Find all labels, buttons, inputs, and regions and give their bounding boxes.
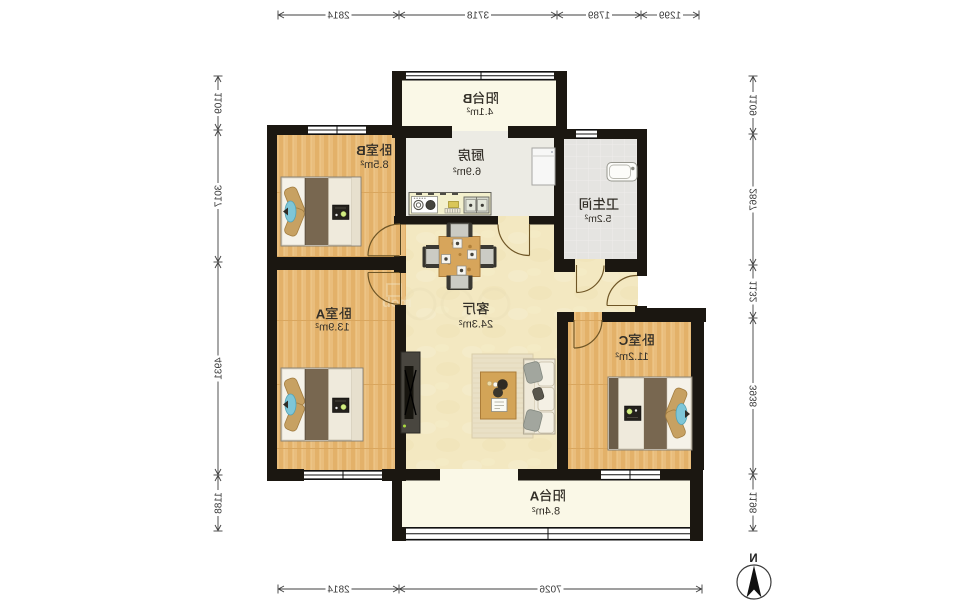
svg-text:11.2m²: 11.2m²: [615, 351, 649, 363]
svg-text:C: C: [618, 333, 628, 348]
svg-text:4931: 4931: [214, 357, 225, 380]
svg-text:2814: 2814: [327, 11, 350, 22]
svg-text:1789: 1789: [587, 11, 610, 22]
svg-text:A: A: [315, 306, 325, 321]
svg-text:24.3m²: 24.3m²: [459, 318, 494, 330]
svg-text:A: A: [529, 488, 539, 503]
svg-text:8.4m²: 8.4m²: [532, 505, 560, 517]
svg-text:7026: 7026: [539, 585, 562, 596]
svg-text:1109: 1109: [749, 94, 760, 116]
svg-text:4.1m²: 4.1m²: [466, 106, 493, 118]
svg-text:3938: 3938: [749, 385, 760, 408]
svg-text:8.5m²: 8.5m²: [360, 159, 388, 171]
svg-text:6.9m²: 6.9m²: [453, 166, 481, 178]
svg-text:1299: 1299: [658, 11, 681, 22]
svg-text:13.9m²: 13.9m²: [315, 321, 350, 333]
svg-text:1132: 1132: [749, 281, 760, 303]
svg-text:3718: 3718: [466, 11, 489, 22]
svg-text:N: N: [749, 553, 757, 565]
svg-text:3017: 3017: [214, 185, 225, 208]
svg-text:5.2m²: 5.2m²: [584, 213, 611, 225]
svg-text:1198: 1198: [749, 492, 760, 514]
svg-text:B: B: [463, 91, 473, 106]
svg-text:B: B: [356, 143, 366, 158]
svg-text:1109: 1109: [214, 92, 225, 114]
svg-text:1188: 1188: [214, 492, 225, 514]
svg-text:2867: 2867: [749, 188, 760, 211]
svg-text:2814: 2814: [327, 585, 350, 596]
